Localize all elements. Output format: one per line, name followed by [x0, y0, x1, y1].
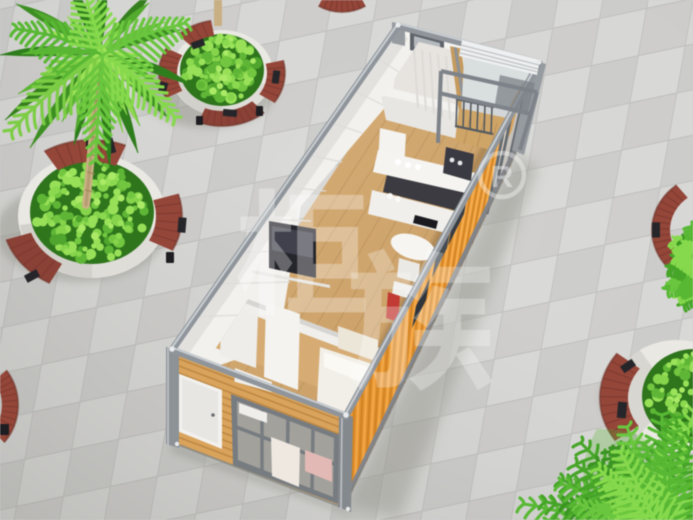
svg-text:R: R: [491, 159, 513, 194]
